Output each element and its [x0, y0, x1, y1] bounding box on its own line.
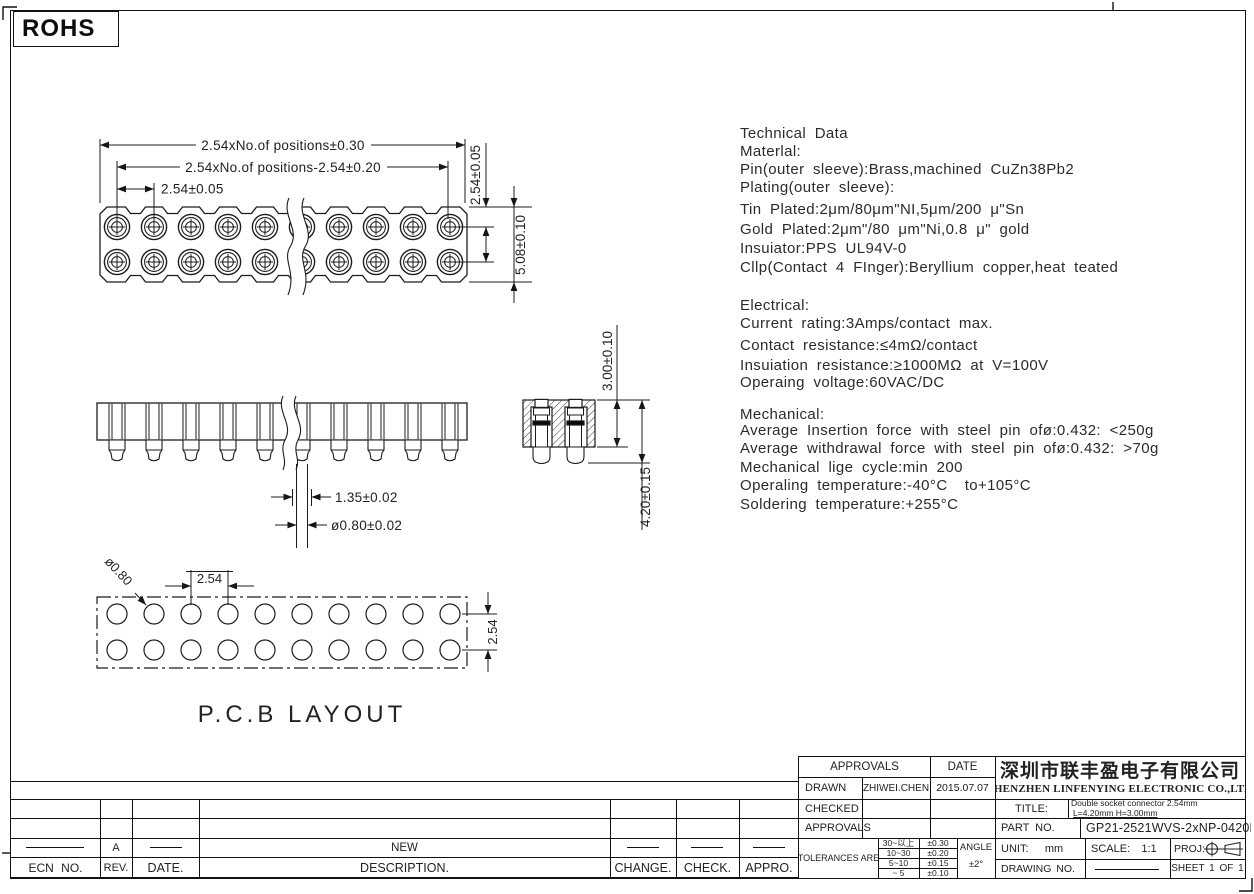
drawing-no-dash	[1095, 869, 1159, 870]
part-no-label: PART NO.	[995, 818, 1086, 838]
unit-value: mm	[1039, 838, 1069, 859]
angle-value: ±2°	[957, 858, 995, 870]
header-rev: REV.	[100, 857, 132, 878]
top-view	[100, 198, 467, 295]
drawn-date: 2015.07.07	[930, 777, 995, 799]
company-name-cn: 深圳市联丰盈电子有限公司	[995, 758, 1245, 780]
approvals-label: APPROVALS	[799, 818, 880, 838]
dim-insulator-height: 3.00±0.10	[600, 331, 615, 391]
approvals-header: APPROVALS	[799, 757, 930, 777]
drawing-no-label: DRAWING NO.	[995, 859, 1091, 878]
dim-total-height: 4.20±0.15	[638, 467, 653, 527]
tolerance-range: 5~10	[878, 858, 919, 868]
tolerance-range: ~ 5	[878, 868, 919, 878]
pcb-dim-pitch: 2.54	[197, 571, 222, 586]
tolerances-label: TOLERANCES ARE	[799, 838, 878, 878]
pcb-layout	[97, 570, 497, 672]
dim-inner-width: 2.54xNo.of positions-2.54±0.20	[185, 160, 381, 175]
dim-body-width: 5.08±0.10	[513, 215, 528, 275]
dim-pin-tip: 1.35±0.02	[335, 490, 398, 505]
revision-table: A NEW ECN NO. REV. DATE. DESCRIPTION. CH…	[10, 781, 800, 879]
revision-check-dash	[691, 847, 723, 848]
header-appro: APPRO.	[739, 857, 799, 878]
header-change: CHANGE.	[610, 857, 676, 878]
angle-label: ANGLE	[957, 841, 995, 853]
dim-pin-diameter: ø0.80±0.02	[331, 518, 402, 533]
scale-value: 1:1	[1134, 838, 1164, 859]
pcb-dim-row: 2.54	[485, 619, 500, 644]
break-lines	[287, 198, 308, 295]
dim-row-pitch: 2.54±0.05	[468, 145, 483, 205]
tolerance-range: 30~以上	[878, 838, 919, 848]
pcb-layout-title: P.C.B LAYOUT	[198, 701, 407, 728]
revision-change-dash	[627, 847, 659, 848]
date-header: DATE	[930, 757, 995, 777]
tolerance-value: ±0.10	[919, 868, 957, 878]
drawn-label: DRAWN	[799, 777, 868, 799]
header-description: DESCRIPTION.	[199, 857, 610, 878]
tolerance-value: ±0.15	[919, 858, 957, 868]
title-value: Double socket connector 2.54mm L=4.20mm …	[1071, 799, 1243, 818]
tolerance-value: ±0.30	[919, 838, 957, 848]
proj-label: PROJ:	[1170, 838, 1208, 859]
part-no-value: GP21-2521WVS-2xNP-0420B	[1080, 818, 1251, 838]
revision-ecn-dash	[26, 847, 84, 848]
company-name-en: SHENZHEN LINFENYING ELECTRONIC CO.,LTD	[995, 781, 1245, 797]
title-block: APPROVALS DATE DRAWN ZHIWEI.CHEN 2015.07…	[798, 756, 1246, 879]
drawn-name: ZHIWEI.CHEN	[862, 777, 930, 799]
dim-overall-width: 2.54xNo.of positions±0.30	[201, 138, 365, 153]
title-label: TITLE:	[995, 799, 1068, 818]
header-date: DATE.	[132, 857, 199, 878]
front-view-dimensions	[271, 464, 331, 548]
tolerance-range: 10~30	[878, 848, 919, 858]
section-view	[523, 399, 595, 463]
checked-label: CHECKED	[799, 799, 868, 818]
header-check: CHECK.	[676, 857, 739, 878]
tolerance-value: ±0.20	[919, 848, 957, 858]
revision-rev: A	[100, 838, 132, 857]
dim-pitch: 2.54±0.05	[161, 182, 224, 197]
socket-positions	[104, 214, 462, 274]
header-ecn-no: ECN NO.	[11, 857, 100, 878]
drawing-sheet: ROHS Technical Data Materlal: Pin(outer …	[0, 0, 1254, 894]
projection-symbol-icon	[1204, 841, 1244, 857]
sheet-label: SHEET 1 OF 1	[1170, 859, 1245, 878]
title-line2: L=4.20mm H=3.00mm	[1071, 809, 1243, 819]
pcb-holes	[107, 604, 460, 660]
revision-description: NEW	[199, 838, 610, 857]
revision-appro-dash	[753, 847, 785, 848]
revision-date-dash	[150, 847, 182, 848]
front-view	[97, 396, 467, 470]
pcb-dim-hole: ø0.80	[102, 554, 136, 589]
